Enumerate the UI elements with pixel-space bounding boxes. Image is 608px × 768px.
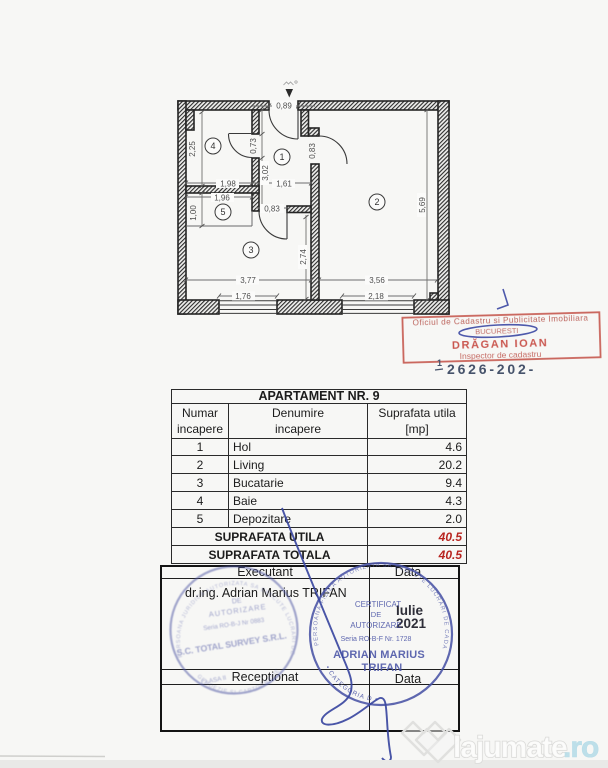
svg-text:AUTORIZARE: AUTORIZARE <box>350 621 401 630</box>
svg-text:2626-202-: 2626-202- <box>447 361 536 377</box>
svg-text:CERTIFICAT: CERTIFICAT <box>355 600 401 609</box>
svg-text:PERSOANA JURIDICA AUTORIZATA S: PERSOANA JURIDICA AUTORIZATA SA EXECUTE … <box>0 0 296 658</box>
svg-text:S.C. TOTAL SURVEY S.R.L.: S.C. TOTAL SURVEY S.R.L. <box>176 630 287 657</box>
svg-text:PERSOANA FIZICA AUTORIZATA SA: PERSOANA FIZICA AUTORIZATA SA EXECUTE LU… <box>0 0 449 650</box>
svg-text:1: 1 <box>437 358 442 368</box>
svg-text:DE: DE <box>231 597 242 605</box>
svg-text:.ro: .ro <box>563 731 599 764</box>
svg-text:DE: DE <box>371 610 381 619</box>
svg-text:TRIFAN: TRIFAN <box>362 662 403 674</box>
svg-text:ADRIAN MARIUS: ADRIAN MARIUS <box>333 649 425 661</box>
svg-text:Seria RO-B-F Nr. 1728: Seria RO-B-F Nr. 1728 <box>341 636 412 643</box>
svg-text:lajumate: lajumate <box>453 731 567 764</box>
svg-text:Seria RO-B-J Nr 0883: Seria RO-B-J Nr 0883 <box>203 617 265 633</box>
svg-text:BUCURESTI: BUCURESTI <box>475 326 519 336</box>
